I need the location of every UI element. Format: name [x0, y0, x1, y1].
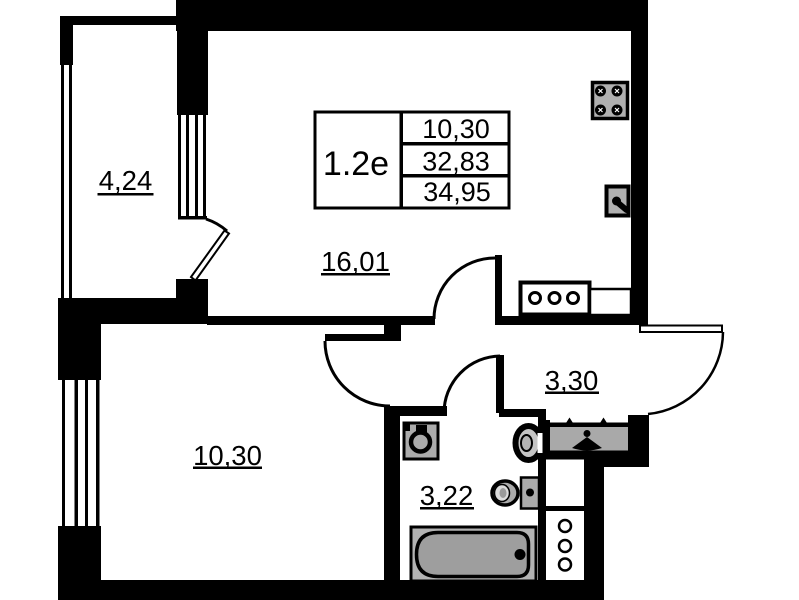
svg-text:16,01: 16,01 [321, 246, 390, 277]
svg-text:10,30: 10,30 [422, 114, 490, 144]
svg-text:4,24: 4,24 [99, 165, 153, 196]
svg-text:10,30: 10,30 [193, 440, 262, 471]
svg-text:34,95: 34,95 [423, 177, 491, 207]
svg-text:3,22: 3,22 [420, 480, 474, 511]
svg-text:32,83: 32,83 [422, 147, 490, 177]
svg-text:3,30: 3,30 [545, 365, 599, 396]
svg-text:1.2e: 1.2e [323, 145, 389, 183]
